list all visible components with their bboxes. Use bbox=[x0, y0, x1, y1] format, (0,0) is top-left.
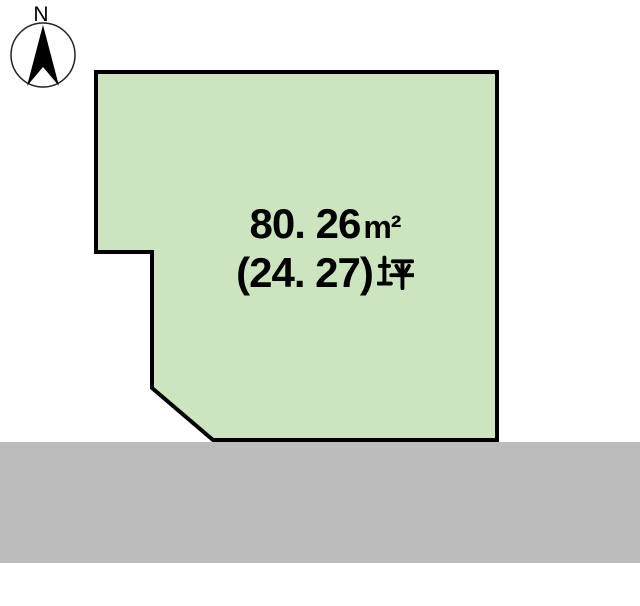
road-area bbox=[0, 442, 640, 563]
area-sqm-unit: m² bbox=[363, 209, 400, 245]
parcel-area-label: 80. 26m² (24. 27) bbox=[162, 201, 488, 296]
plot-drawing: N bbox=[0, 0, 640, 606]
compass: N bbox=[11, 3, 75, 87]
area-sqm-line: 80. 26m² bbox=[162, 201, 488, 250]
area-tsubo-value: (24. 27) bbox=[236, 249, 373, 296]
compass-north-label: N bbox=[33, 3, 48, 26]
area-sqm-value: 80. 26 bbox=[250, 200, 361, 247]
tsubo-kanji-icon bbox=[377, 253, 414, 290]
area-tsubo-line: (24. 27) bbox=[162, 250, 488, 296]
north-arrow-icon bbox=[27, 25, 59, 86]
land-plot-diagram: N 80. 26m² (24. 27) bbox=[0, 0, 640, 606]
